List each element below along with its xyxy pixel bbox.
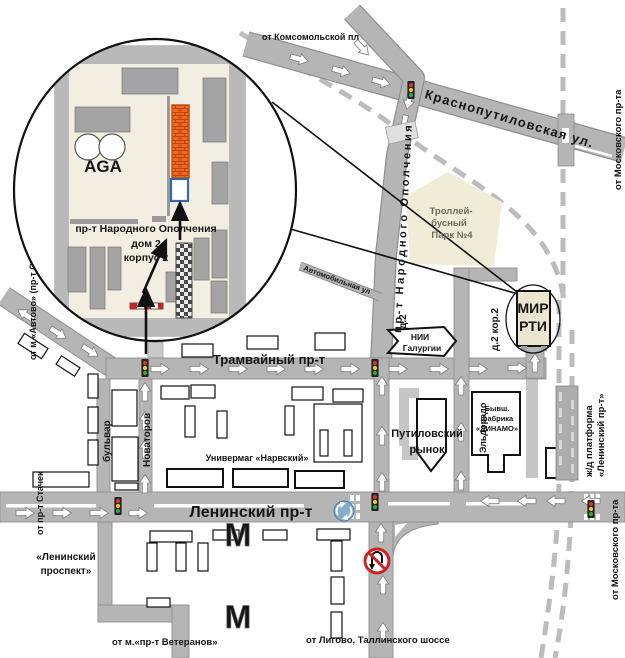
label-nii-2: Галургии	[403, 343, 442, 353]
label-rynok-2: рынок	[410, 444, 445, 456]
street-label-novatorov: Новаторов	[142, 413, 153, 467]
street-label-avtomobilnaya: Автомобильная ул	[302, 263, 372, 296]
label-rynok-1: Путиловский	[391, 428, 463, 440]
traffic-light-icon	[407, 81, 414, 99]
label-univermag: Универмаг «Нарвский»	[206, 453, 309, 463]
direction-label-veteranov: от м.«пр-т Ветеранов»	[112, 637, 218, 648]
traffic-light-icon	[114, 497, 121, 515]
label-trolley-park-2: бусный	[431, 218, 467, 229]
label-d2: д.2	[398, 314, 409, 329]
label-mir: МИР	[517, 300, 548, 316]
mir-rti: МИР РТИ	[506, 285, 560, 353]
label-platform-2: «Ленинский пр-т»	[596, 393, 607, 477]
street-veteranov-link-south	[172, 605, 189, 658]
label-metro-station-2: проспект»	[41, 566, 92, 577]
label-platform-1: ж/д платформа	[584, 405, 595, 478]
traffic-light-icon	[141, 359, 148, 377]
metro-icon: М	[225, 599, 252, 635]
traffic-light-icon	[371, 359, 378, 377]
direction-label-ligovo: от Лигово, Таллинского шоссе	[306, 635, 450, 646]
destination-building	[171, 179, 188, 201]
direction-label-stachek: от пр-т Стачек	[35, 471, 45, 535]
railway-platform	[556, 386, 578, 480]
no-u-turn-sign-icon	[365, 549, 389, 573]
label-dinamo-3: «ДИНАМО»	[476, 424, 518, 433]
inset-address-line1: пр-т Народного Ополчения	[75, 223, 216, 235]
label-nii-1: НИИ	[411, 332, 429, 342]
direction-label-moskovsky-top: от Московского пр-та	[613, 89, 624, 190]
inset-address-line2: дом 2	[131, 238, 161, 250]
label-trolley-park-1: Троллей-	[429, 206, 472, 217]
rail-track-strip	[176, 243, 192, 318]
inset-content: AGA пр-т Народного Ополчения дом 2 корпу…	[14, 39, 296, 341]
direction-label-komsomolskaya: от Комсомольской пл	[262, 32, 359, 42]
label-dinamo-2: фабрика	[481, 414, 514, 423]
traffic-light-icon	[587, 500, 594, 518]
label-trolley-park-3: Парк №4	[431, 230, 473, 241]
label-rti: РТИ	[519, 318, 547, 334]
roundabout-sign-icon	[334, 501, 354, 521]
label-dinamo-1: Бывш.	[485, 404, 510, 413]
street-label-tramvayny: Трамвайный пр-т	[213, 352, 325, 367]
street-veteranov-link	[98, 522, 112, 618]
map-canvas: МИР РТИ от Комсомольской пл Краснопутило…	[0, 0, 625, 658]
target-building-orange	[172, 105, 189, 178]
inset-address-line3: корпус 2	[124, 252, 169, 264]
traffic-light-icon	[371, 493, 378, 511]
street-label-bulvar: бульвар	[101, 420, 113, 462]
label-d2k2: д.2 кор.2	[490, 308, 501, 351]
label-aga: AGA	[84, 157, 122, 176]
direction-label-moskovsky-bottom: от Московского пр-та	[610, 499, 621, 600]
metro-icon: М	[225, 517, 252, 553]
label-metro-station-1: «Ленинский	[36, 552, 95, 563]
